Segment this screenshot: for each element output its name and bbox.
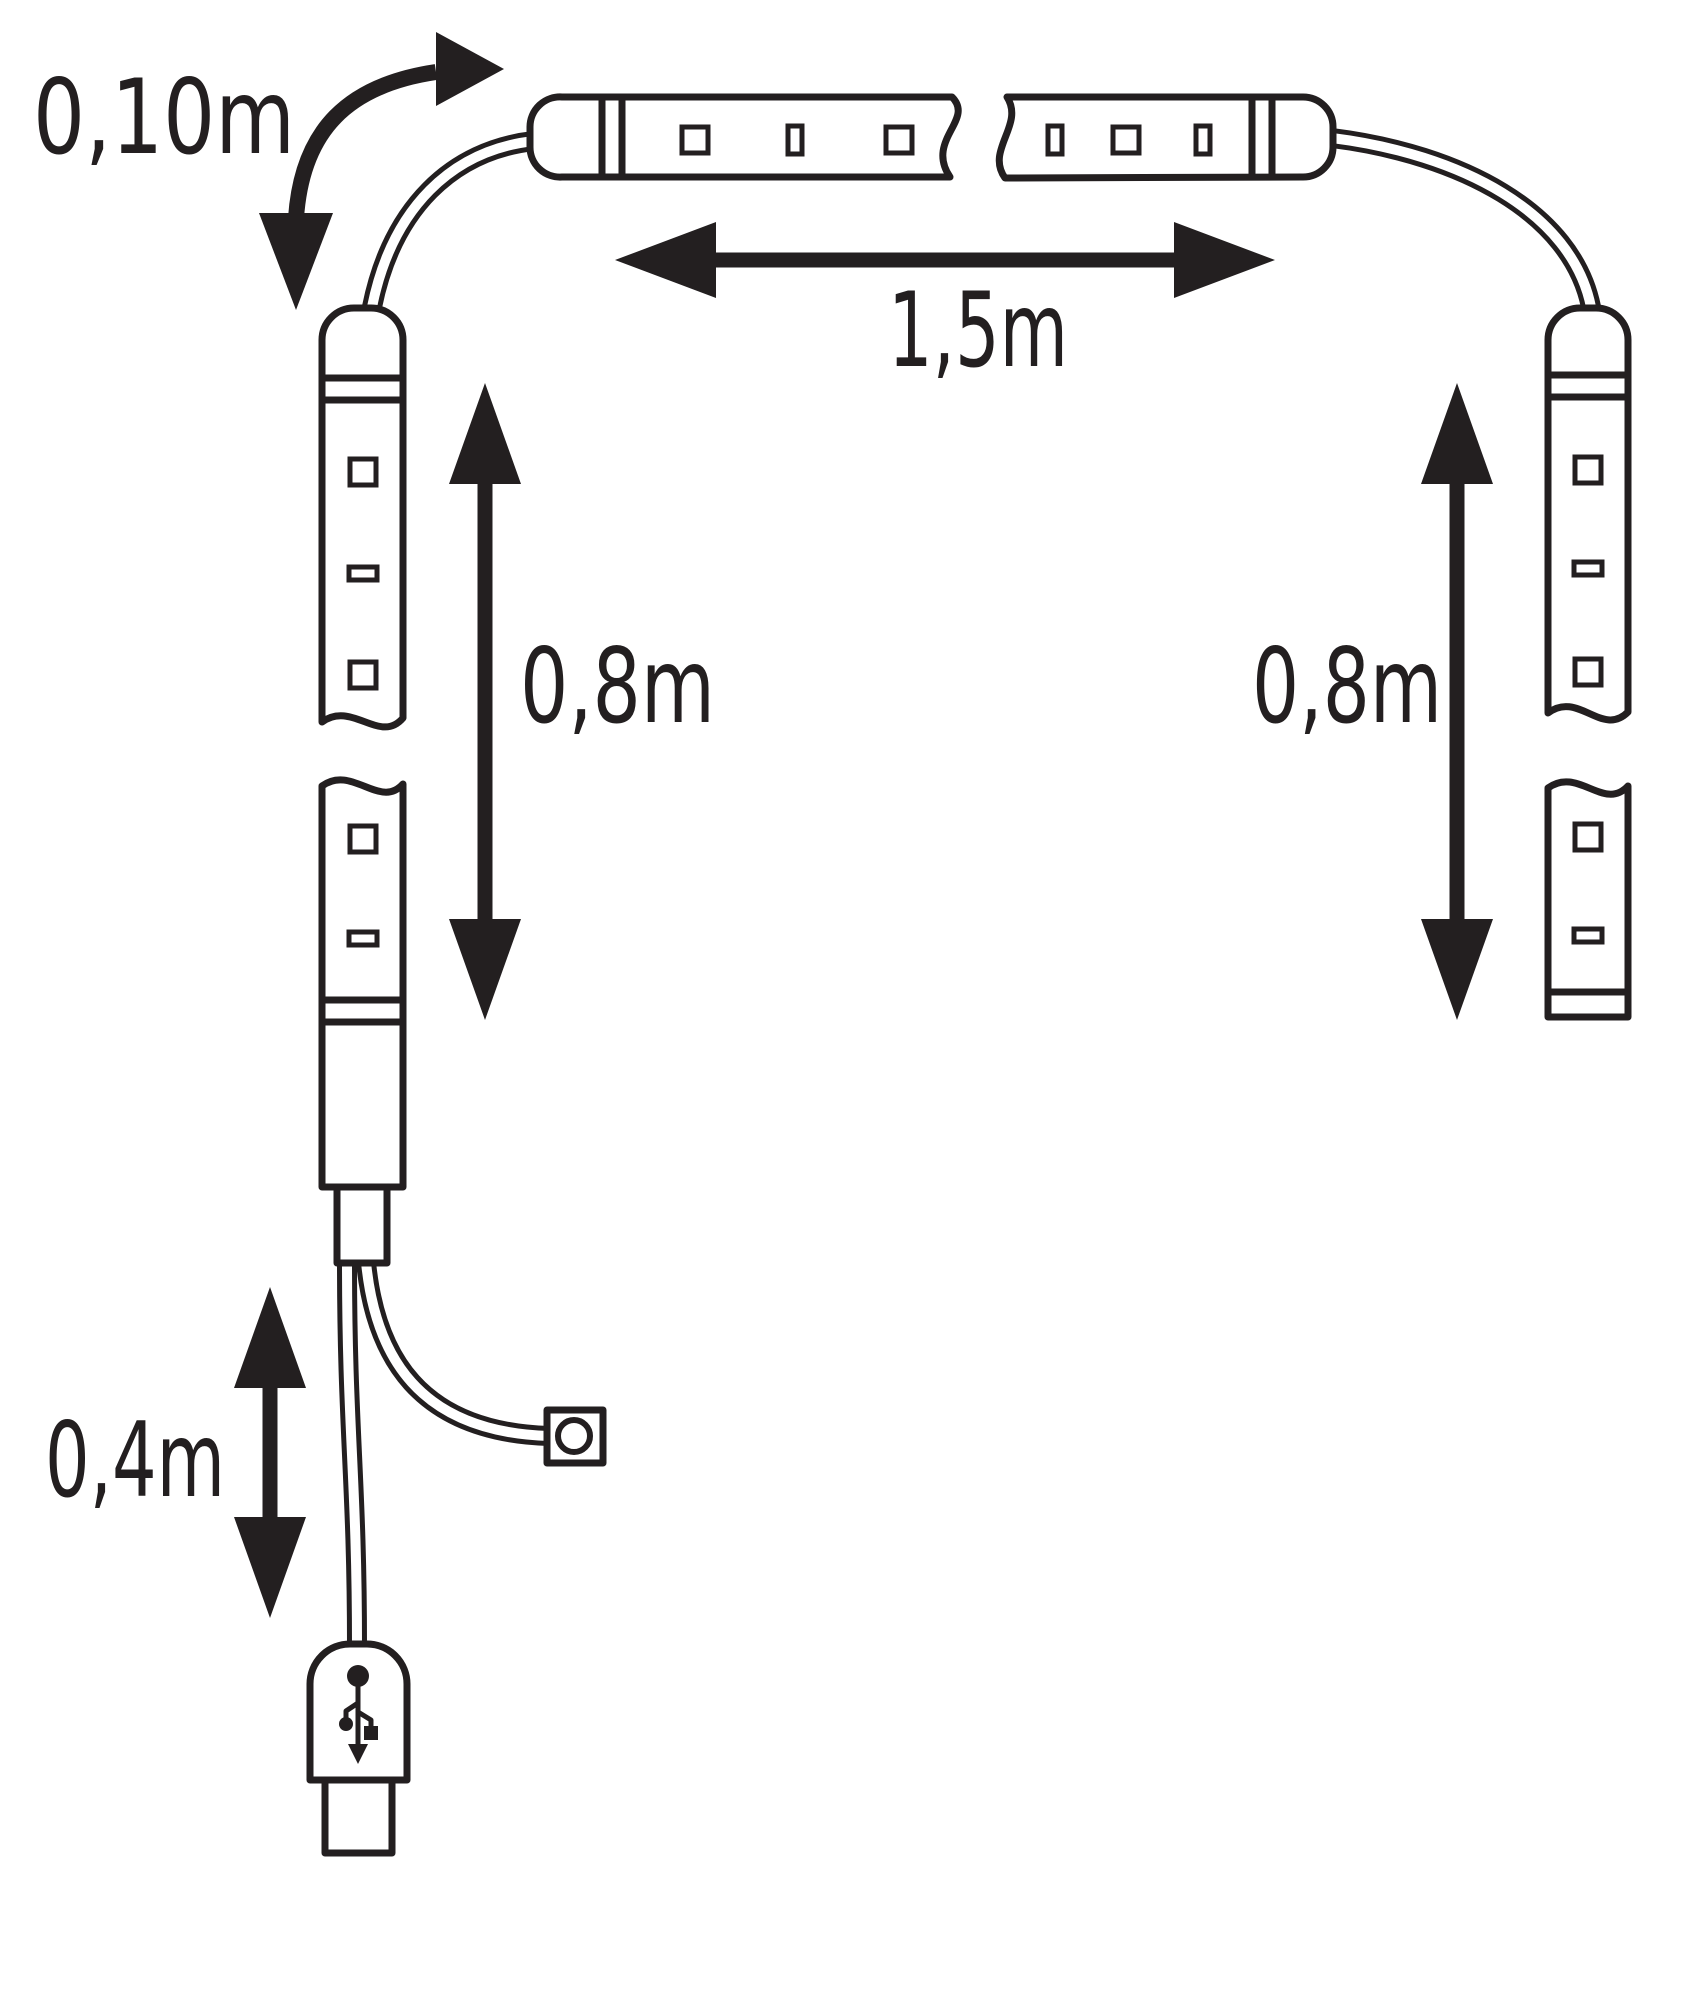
cable-to-switch (366, 1262, 549, 1436)
dimension-arrow-usb-cable (234, 1287, 306, 1618)
strip-end-plug (337, 1187, 387, 1263)
led-slot (349, 567, 377, 580)
led-square (1575, 659, 1601, 685)
label-left-strip-length: 0,8m (520, 627, 715, 747)
led-slot (1048, 126, 1062, 154)
led-square (350, 459, 376, 485)
led-strip-left-upper-segment (322, 308, 403, 727)
label-top-strip-length: 1,5m (888, 271, 1068, 391)
led-slot (349, 932, 377, 945)
led-square (886, 127, 912, 153)
cable-top-right (1332, 138, 1591, 307)
led-square (350, 662, 376, 688)
led-slot (1574, 562, 1602, 575)
led-square (350, 826, 376, 852)
diagram-canvas: 0,10m 1,5m 0,8m 0,8m 0,4m (0, 0, 1701, 2000)
inline-switch-icon (547, 1410, 603, 1463)
led-slot (1574, 929, 1602, 942)
led-slot (788, 126, 802, 154)
label-connector-length: 0,10m (33, 58, 295, 178)
usb-plug-icon (310, 1644, 407, 1853)
led-strip-top-right-segment (999, 97, 1333, 178)
led-square (1575, 824, 1601, 850)
label-right-strip-length: 0,8m (1252, 627, 1442, 747)
led-square (1113, 127, 1139, 153)
led-strip-top-left-segment (530, 97, 958, 177)
cable-to-usb (347, 1262, 357, 1646)
led-strip-left-lower-segment (322, 780, 403, 1187)
led-square (682, 127, 708, 153)
cable-top-left (372, 141, 534, 307)
led-strip-right-upper-segment (1548, 308, 1628, 720)
label-usb-cable-length: 0,4m (45, 1401, 225, 1521)
led-strip-right-lower-segment (1548, 782, 1628, 1017)
led-square (1575, 457, 1601, 483)
led-slot (1196, 126, 1210, 154)
dimension-arrow-left-strip (449, 383, 521, 1020)
